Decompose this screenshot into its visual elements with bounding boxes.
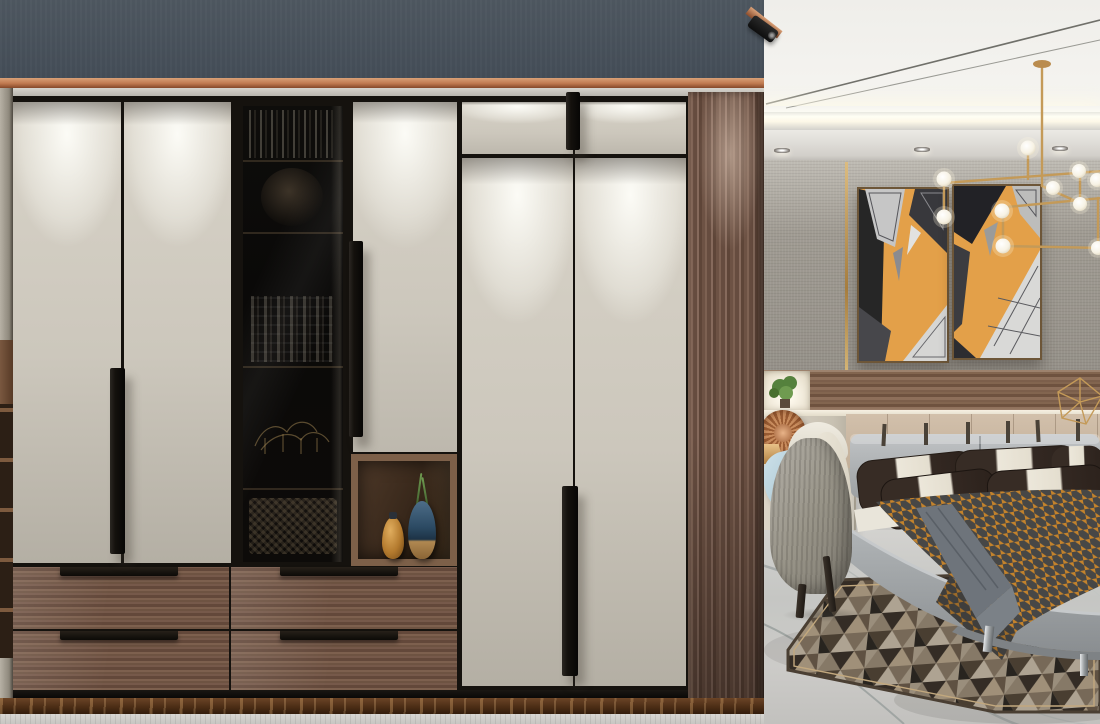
chandelier: [920, 48, 1100, 263]
drawer: [231, 631, 457, 692]
amber-vase: [382, 517, 404, 559]
door-handle: [562, 486, 578, 676]
glass-reflection: [243, 106, 343, 562]
wardrobe-upper-door-right: [575, 102, 686, 154]
accent-chair: [770, 438, 852, 594]
downlight: [774, 148, 790, 153]
wardrobe-door-3: [353, 102, 457, 452]
walnut-end-column: [688, 92, 764, 714]
adjacent-shelf-sliver: [0, 88, 13, 714]
drawer-handle: [60, 631, 178, 640]
vase-niche: [351, 454, 457, 566]
front-floor-strip: [0, 714, 764, 724]
plant-niche: [762, 371, 810, 411]
gold-inlay-strip: [845, 162, 848, 372]
door-handle: [349, 241, 363, 437]
marble-plinth: [0, 698, 764, 715]
bedroom-wardrobe-render: [0, 0, 1100, 724]
green-plant: [762, 371, 810, 411]
wardrobe-tall-door-right: [575, 158, 686, 686]
drawer-handle: [60, 567, 178, 576]
drawer: [13, 631, 229, 692]
drawer-handle: [280, 567, 398, 576]
drawer-handle: [280, 631, 398, 640]
bulkhead-band: [0, 0, 764, 78]
drawer: [13, 567, 229, 629]
wardrobe-upper-door-left: [462, 102, 573, 154]
wardrobe-tall-door-left: [462, 158, 573, 686]
wardrobe-door-2: [124, 102, 231, 563]
door-handle: [566, 92, 580, 150]
blue-vase: [408, 501, 436, 559]
display-cabinet: [243, 106, 343, 562]
drawer: [231, 567, 457, 629]
wardrobe-door-1: [13, 102, 121, 563]
platform-bed: [840, 390, 1100, 700]
door-handle: [110, 368, 125, 554]
brass-polyhedron: [1056, 376, 1100, 426]
